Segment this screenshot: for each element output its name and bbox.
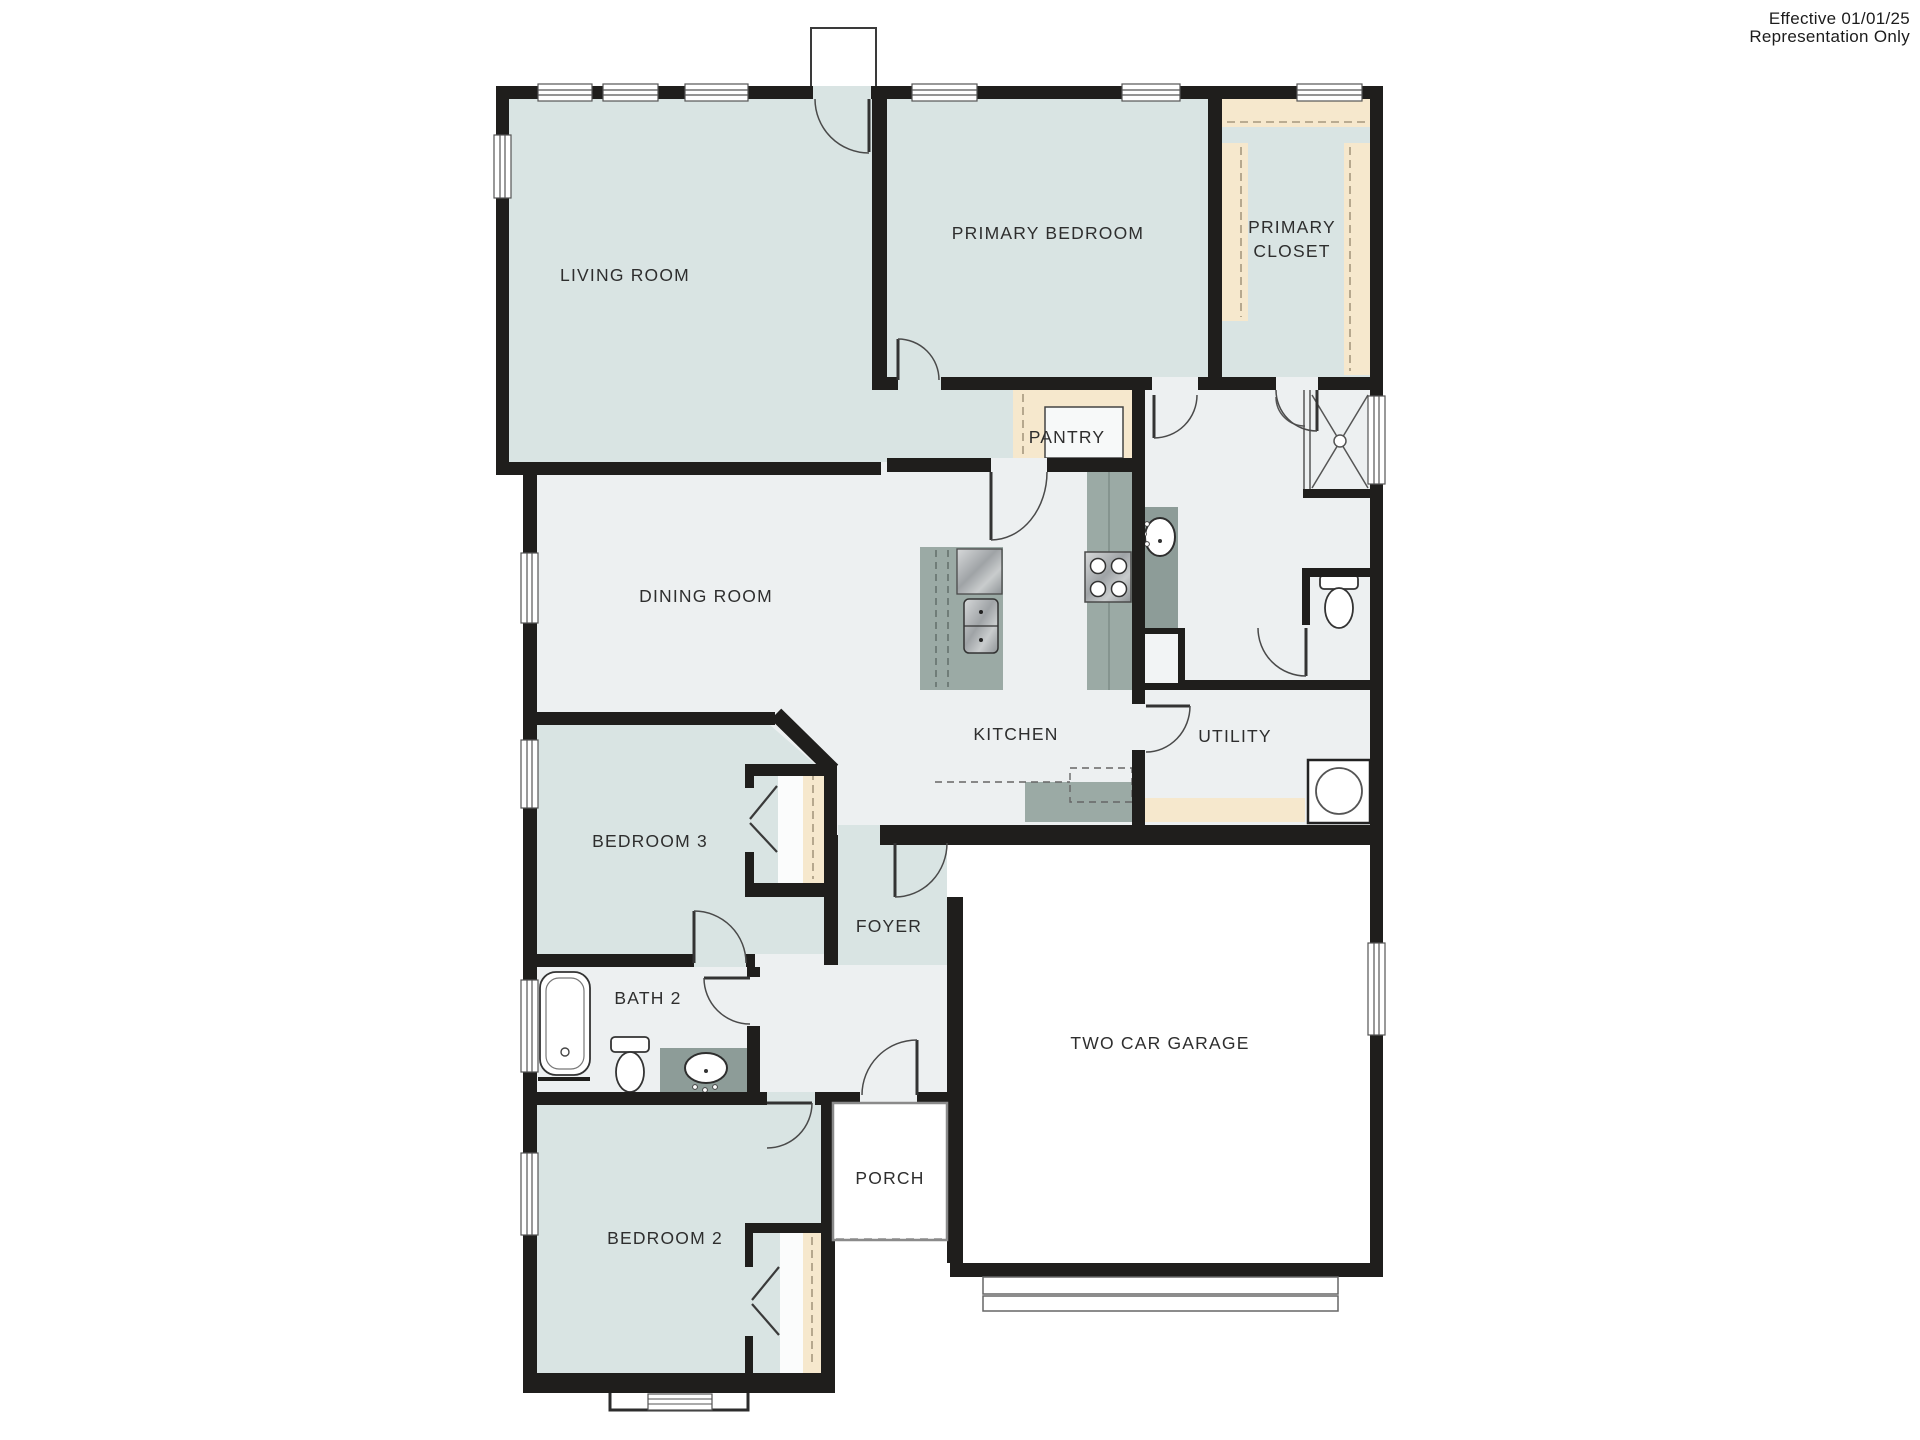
pantry-label: PANTRY: [1029, 427, 1106, 447]
garage-label: TWO CAR GARAGE: [1070, 1033, 1249, 1053]
window-icon: [1368, 943, 1385, 1035]
window-icon: [521, 980, 538, 1072]
room-garage: [963, 845, 1370, 1263]
bathtub-icon: [538, 972, 590, 1079]
bedroom2-label: BEDROOM 2: [607, 1228, 723, 1248]
entry-alcove: [811, 28, 876, 90]
primary-bedroom-label: PRIMARY BEDROOM: [952, 223, 1144, 243]
annotation-line1: Effective 01/01/25: [1769, 9, 1910, 28]
porch-label: PORCH: [855, 1168, 924, 1188]
bath2-vanity: [660, 1048, 747, 1092]
floor-plan: LIVING ROOM PRIMARY BEDROOM PRIMARY CLOS…: [0, 0, 1920, 1440]
window-icon: [912, 84, 977, 101]
primary-closet-label-line2: CLOSET: [1253, 241, 1330, 261]
kitchen-sink-icon: [964, 599, 998, 653]
hall-to-primary: [872, 390, 1013, 462]
sink-icon: [685, 1053, 727, 1083]
kitchen-label: KITCHEN: [973, 724, 1058, 744]
dining-room-label: DINING ROOM: [639, 586, 773, 606]
window-icon: [603, 84, 658, 101]
window-icon: [538, 84, 592, 101]
floor-plan-page: LIVING ROOM PRIMARY BEDROOM PRIMARY CLOS…: [0, 0, 1920, 1440]
bedroom2-closet: [780, 1233, 821, 1373]
window-icon: [1297, 84, 1362, 101]
bath2-label: BATH 2: [614, 988, 681, 1008]
bedroom3-label: BEDROOM 3: [592, 831, 708, 851]
utility-counter-tan: [1145, 798, 1305, 822]
window-icon: [521, 1153, 538, 1235]
window-icon: [685, 84, 748, 101]
window-icon: [521, 740, 538, 808]
window-icon: [1368, 396, 1385, 484]
room-foyer: [832, 845, 947, 965]
utility-label: UTILITY: [1198, 726, 1272, 746]
bedroom3-closet: [778, 768, 824, 883]
dishwasher-icon: [957, 549, 1002, 594]
primary-vanity: [1142, 507, 1178, 628]
window-icon: [521, 553, 538, 623]
garage-door-icon: [983, 1277, 1338, 1311]
window-icon: [1122, 84, 1180, 101]
living-room-label: LIVING ROOM: [560, 265, 690, 285]
foyer-label: FOYER: [856, 916, 922, 936]
kitchen-island: [920, 547, 1003, 690]
annotation-line2: Representation Only: [1749, 27, 1910, 46]
stove-icon: [1085, 552, 1131, 602]
washer-icon: [1308, 760, 1370, 823]
primary-closet-label-line1: PRIMARY: [1248, 217, 1336, 237]
window-icon: [494, 135, 511, 198]
